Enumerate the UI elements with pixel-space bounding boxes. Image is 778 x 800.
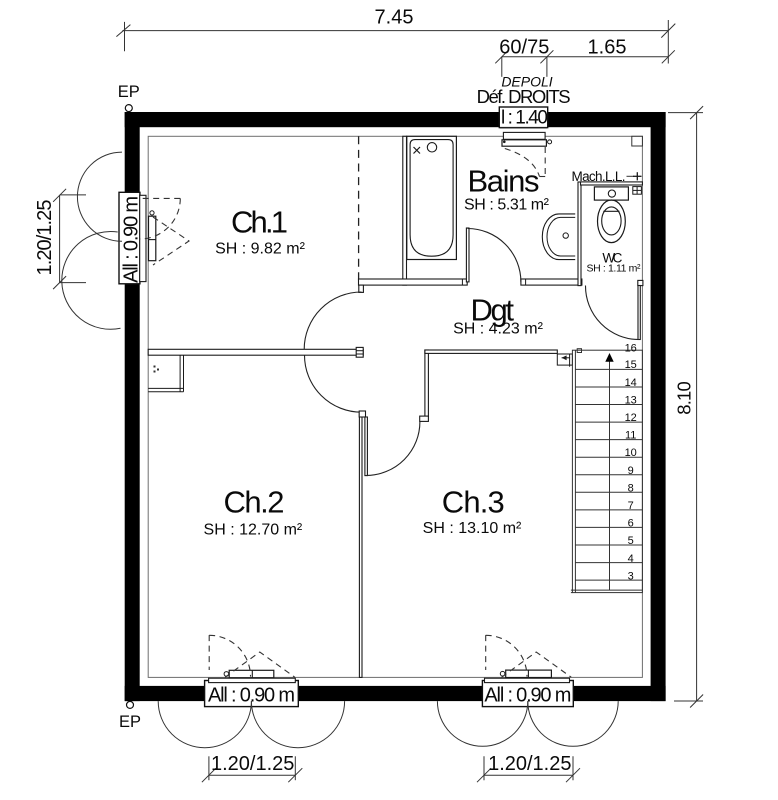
svg-text:Ch.2: Ch.2 <box>224 485 285 520</box>
svg-text:1.20/1.25: 1.20/1.25 <box>34 200 56 276</box>
svg-text:8.10: 8.10 <box>673 381 694 415</box>
svg-text:5: 5 <box>628 535 634 547</box>
svg-text:14: 14 <box>625 377 637 389</box>
svg-text:15: 15 <box>625 359 637 371</box>
svg-text:3: 3 <box>628 570 634 582</box>
svg-text:Ch.1: Ch.1 <box>231 205 288 240</box>
svg-text:SH : 12.70 m²: SH : 12.70 m² <box>204 522 303 539</box>
svg-text:8: 8 <box>628 482 634 494</box>
svg-text:16: 16 <box>625 343 637 355</box>
svg-text:9: 9 <box>628 465 634 477</box>
svg-text:60/75: 60/75 <box>499 37 549 59</box>
svg-text:11: 11 <box>625 430 636 442</box>
svg-text:Mach.L.L.: Mach.L.L. <box>572 169 626 184</box>
svg-text:4: 4 <box>628 553 634 565</box>
svg-text:Ch.3: Ch.3 <box>442 485 505 520</box>
svg-text:Bains: Bains <box>468 164 540 199</box>
svg-text:SH : 1.11 m²: SH : 1.11 m² <box>587 263 642 275</box>
svg-text:6: 6 <box>628 518 634 530</box>
svg-text:13: 13 <box>625 394 637 406</box>
svg-text:7: 7 <box>628 500 634 512</box>
svg-text:All : 0.90 m: All : 0.90 m <box>120 196 142 283</box>
svg-text:1.20/1.25: 1.20/1.25 <box>211 753 294 775</box>
svg-text:Déf. DROITS: Déf. DROITS <box>477 86 571 107</box>
svg-text:EP: EP <box>119 713 141 731</box>
svg-text:l : 1.40: l : 1.40 <box>501 108 548 129</box>
svg-text:7.45: 7.45 <box>375 7 414 29</box>
svg-text:SH : 5.31 m²: SH : 5.31 m² <box>464 196 550 213</box>
svg-text:1.20/1.25: 1.20/1.25 <box>488 753 571 775</box>
svg-text:SH : 13.10 m²: SH : 13.10 m² <box>423 520 522 537</box>
svg-text:EP: EP <box>118 83 140 101</box>
svg-text:SH : 4.23 m²: SH : 4.23 m² <box>453 321 543 338</box>
svg-text:1.65: 1.65 <box>588 37 627 59</box>
svg-text:10: 10 <box>625 447 637 459</box>
svg-text:SH : 9.82 m²: SH : 9.82 m² <box>215 241 305 258</box>
svg-text:12: 12 <box>625 412 637 424</box>
